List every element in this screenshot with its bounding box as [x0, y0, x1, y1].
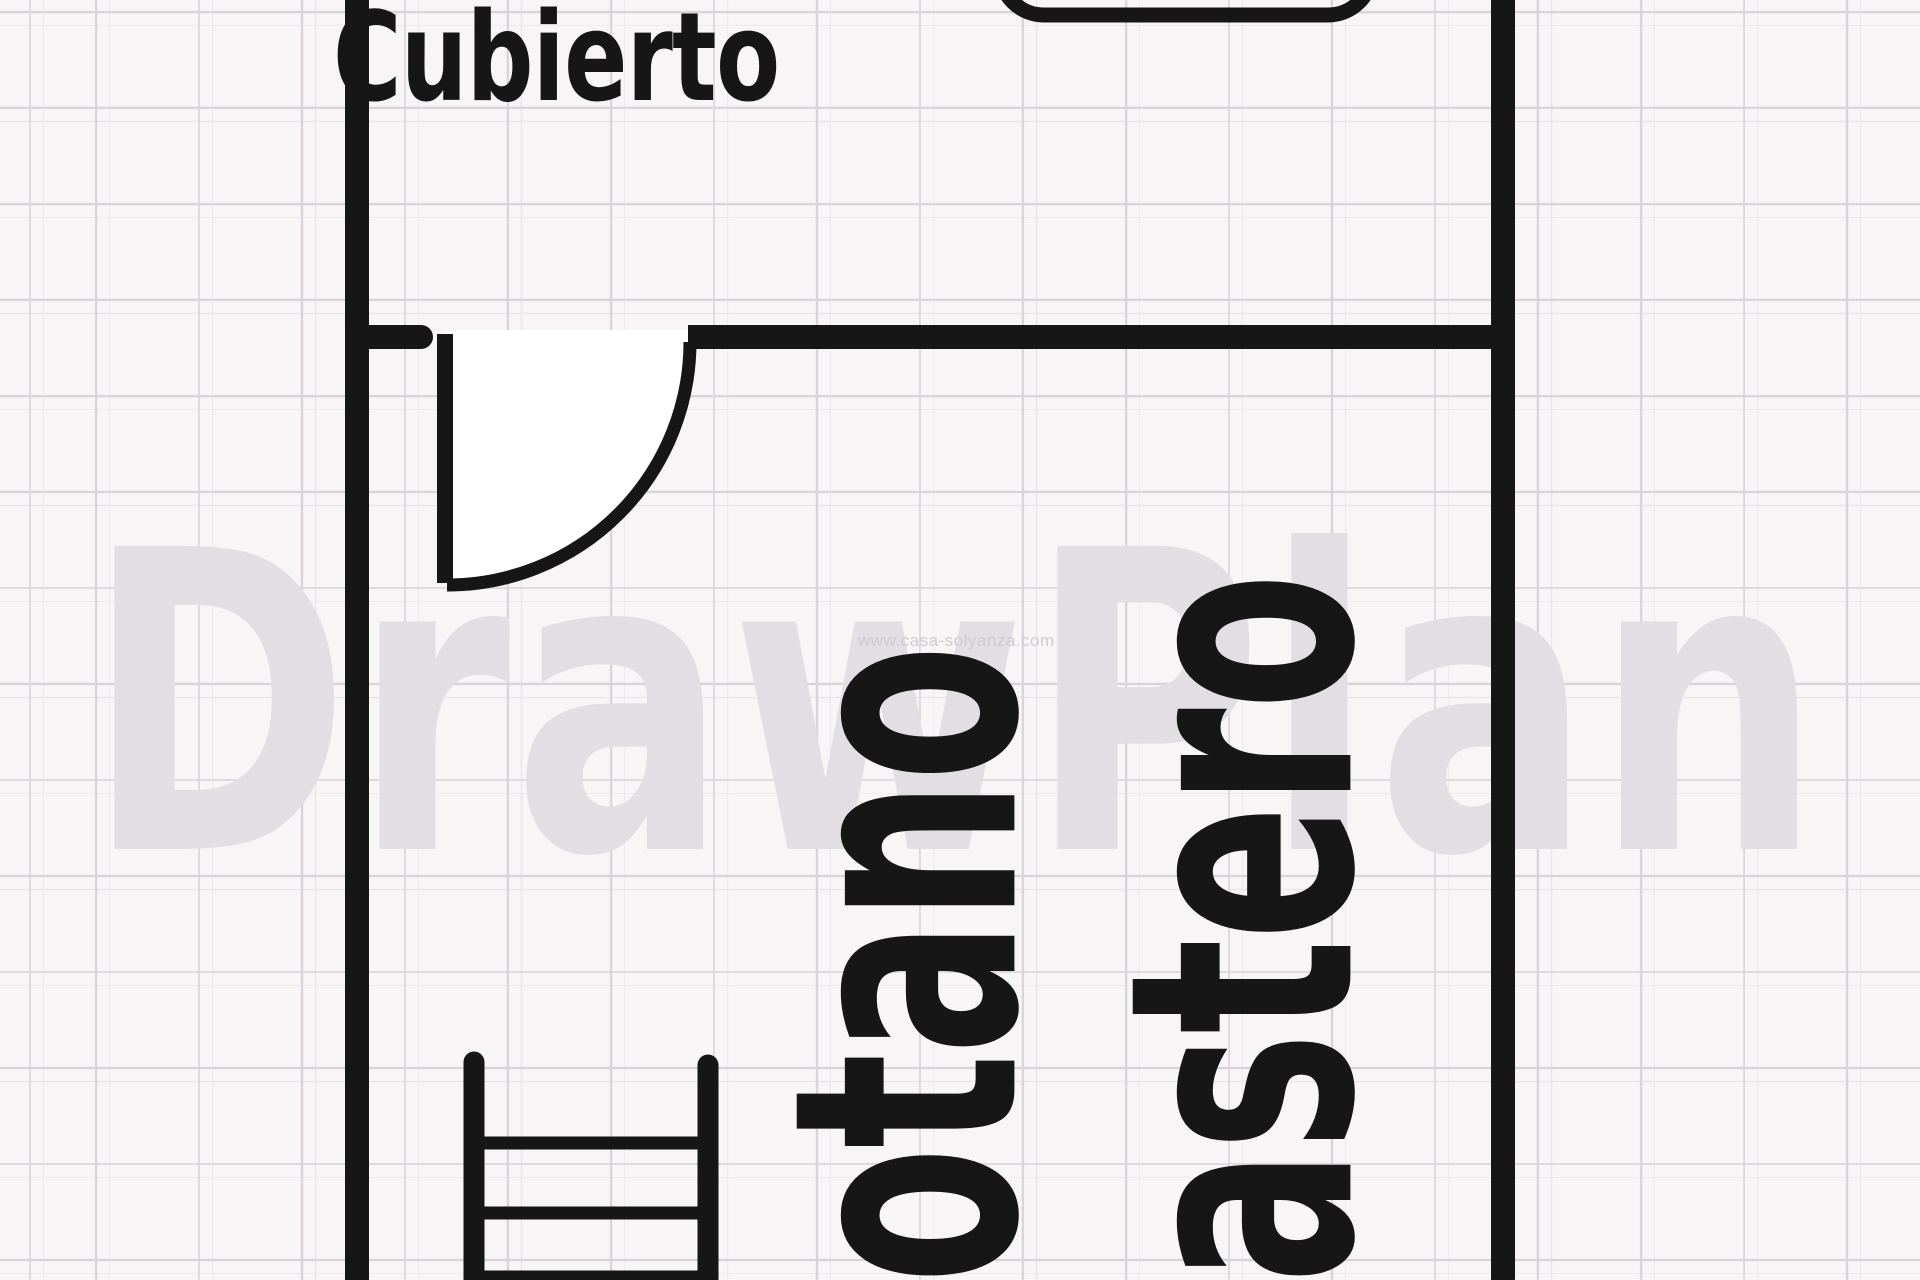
- room-label-sotano-partial: otano: [754, 646, 1064, 1280]
- website-watermark: www.casa-solyanza.com: [858, 631, 1055, 651]
- floorplan-canvas: DrawPlan Cubierto otano astero www.casa-…: [0, 0, 1920, 1280]
- ladder-icon: [474, 1062, 708, 1280]
- room-label-cubierto: Cubierto: [333, 0, 779, 120]
- room-label-trastero-partial: astero: [1090, 575, 1400, 1280]
- rounded-fixture-outline: [1000, 0, 1372, 15]
